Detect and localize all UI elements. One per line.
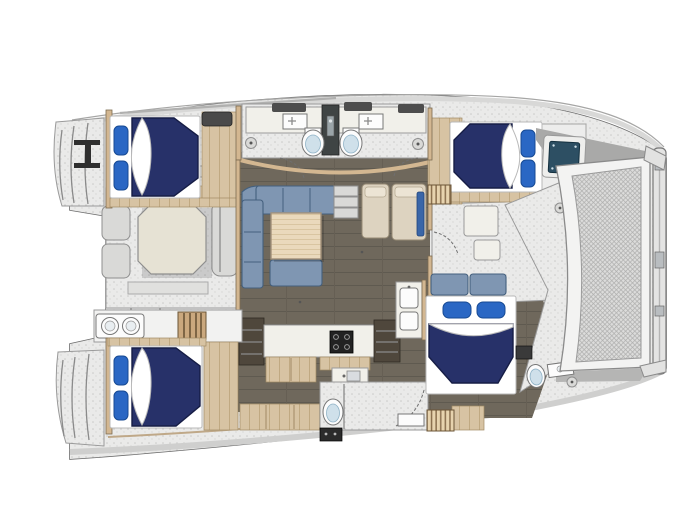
floor-plan-canvas — [0, 0, 700, 525]
stbd-fwd-head-cabinet — [516, 346, 532, 359]
port-fwd-cabin-left-wall — [428, 108, 432, 160]
stove — [330, 331, 353, 353]
bow-trampoline — [556, 146, 666, 377]
floor-fitting-dot — [361, 251, 364, 254]
louver-locker — [178, 312, 206, 339]
forward-seat-box-2 — [474, 240, 500, 260]
waste-unit — [320, 428, 342, 441]
cockpit-right-bench — [212, 202, 238, 276]
cockpit-left-seat-1 — [102, 206, 130, 240]
salon-table — [271, 213, 321, 259]
toilet-port-aft — [302, 128, 324, 156]
settee-top-arm — [256, 186, 336, 214]
settee-bottom-arm — [270, 260, 322, 286]
heads-mirror-right — [344, 102, 372, 111]
forward-cockpit-wall-upper — [428, 204, 432, 230]
chaise-lounge-1 — [362, 184, 389, 238]
deck-hatch-round-left-pin — [250, 142, 253, 145]
vanity-twin-sinks — [396, 282, 422, 338]
heads-mirror-left — [272, 103, 306, 112]
foredeck-hatch-round-1-pin — [559, 207, 562, 210]
double-round-sink-vanity — [96, 314, 144, 338]
stbd-fwd-cabin-left-wall — [422, 280, 426, 340]
floor-fitting-dot — [299, 301, 302, 304]
catamaran-floor-plan — [0, 0, 700, 525]
forward-bench-seat — [431, 274, 506, 295]
settee-left-arm — [242, 200, 263, 288]
salon-aft-wall — [236, 160, 240, 334]
stbd-fwd-cabin-sole — [452, 406, 484, 430]
chaise-lounge-2 — [392, 184, 426, 240]
shower-column — [327, 116, 334, 136]
trampoline-mesh — [572, 167, 641, 362]
cockpit-table — [138, 204, 206, 274]
starboard-hull-bench — [240, 404, 320, 430]
cockpit-bottom-bench — [128, 282, 208, 294]
toilet-starboard-aft — [323, 399, 343, 425]
stbd-aft-cabin-sole — [204, 342, 238, 430]
foredeck-hatch-round-2-pin — [571, 381, 574, 384]
shower-knob — [329, 119, 332, 122]
bed-starboard-forward — [426, 296, 516, 394]
stbd-fwd-companionway-steps — [427, 410, 454, 431]
port-aft-cabin — [106, 106, 241, 208]
forward-crossbeam — [653, 148, 666, 374]
stbd-aft-cabin-sill — [108, 338, 206, 346]
port-aft-cabin-window — [202, 112, 232, 126]
bed-port-forward — [450, 122, 542, 192]
port-aft-cabin-right-wall — [236, 106, 241, 160]
galley-counter — [264, 325, 376, 357]
port-aft-cabin-sill — [110, 198, 238, 207]
bed-port-aft — [110, 116, 200, 198]
forward-seat-box-1 — [464, 206, 498, 236]
cockpit-left-seat-2 — [102, 244, 130, 278]
bed-starboard-aft — [110, 346, 202, 428]
deck-hatch-round-right-pin — [417, 143, 420, 146]
heads-hatch-dark — [398, 104, 424, 113]
port-companionway-steps — [334, 186, 358, 218]
port-fwd-companionway-steps — [428, 185, 451, 204]
toilet-port-forward — [340, 128, 362, 156]
shower-shelf — [398, 414, 424, 426]
starboard-aft-cabin — [94, 310, 242, 434]
